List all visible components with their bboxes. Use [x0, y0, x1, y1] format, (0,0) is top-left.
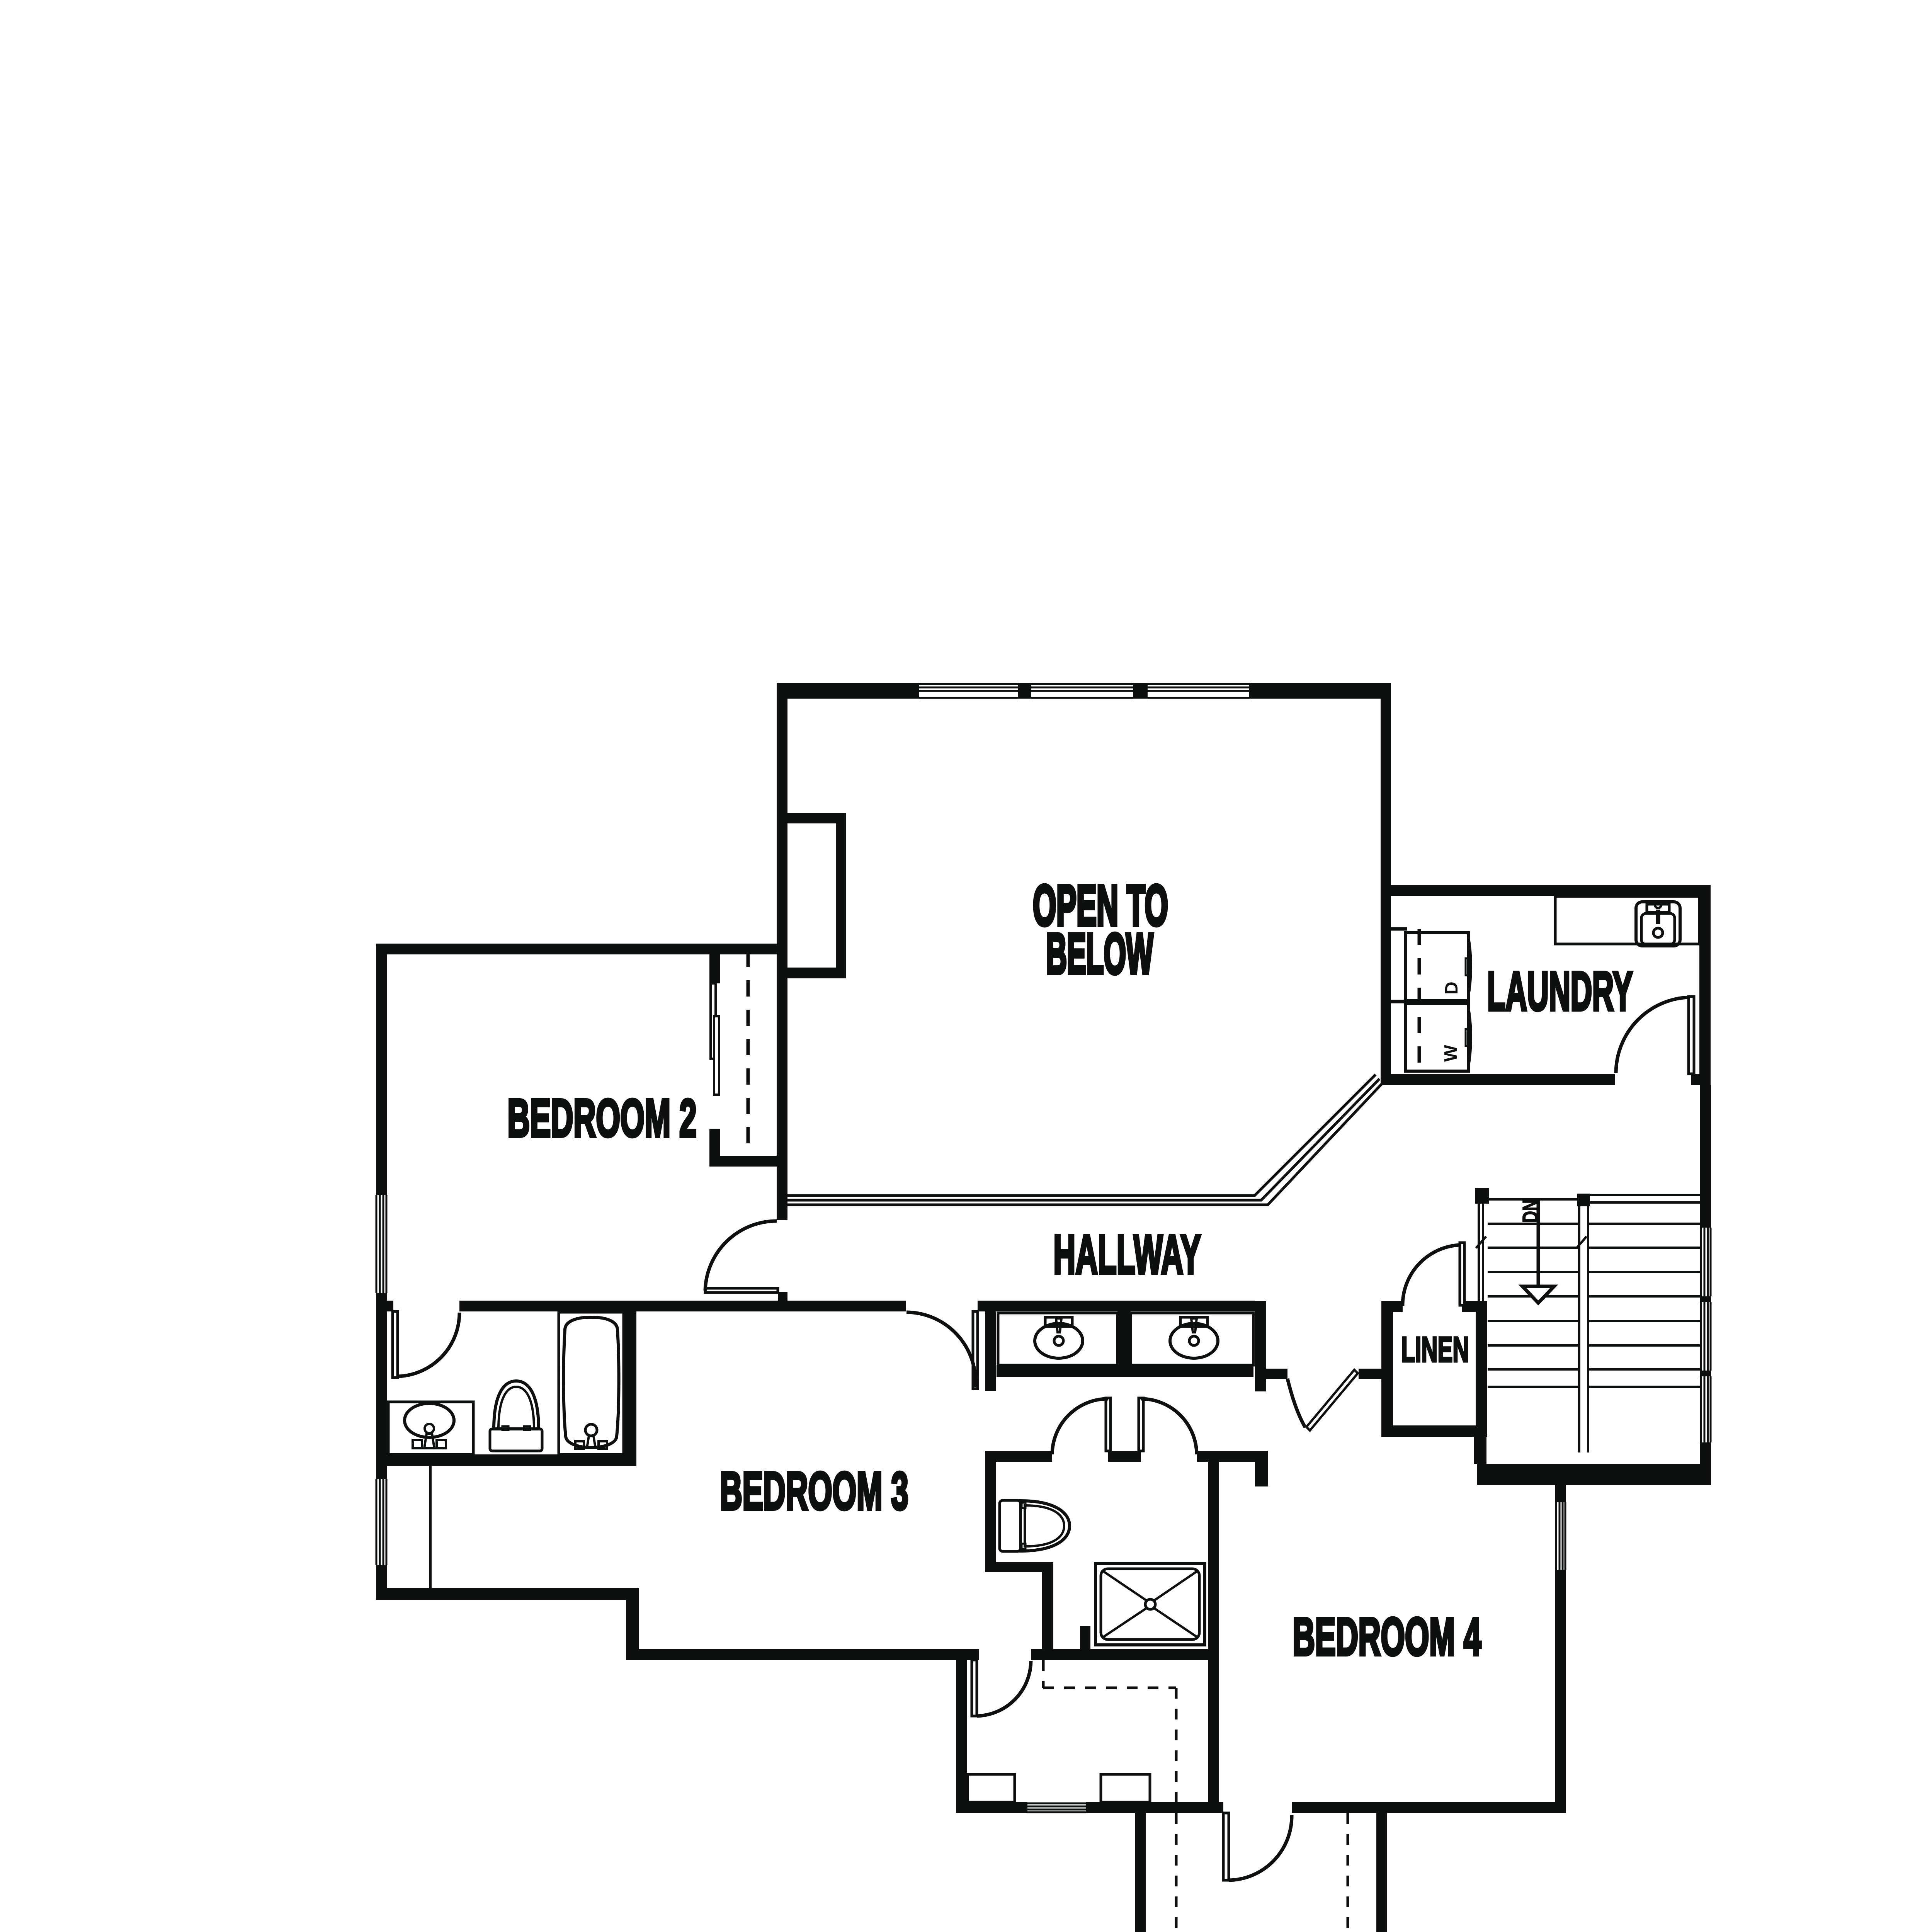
svg-text:BEDROOM 3: BEDROOM 3 [720, 1461, 908, 1521]
svg-text:HALLWAY: HALLWAY [1053, 1224, 1201, 1285]
svg-text:BEDROOM 2: BEDROOM 2 [507, 1088, 697, 1148]
svg-text:BELOW: BELOW [1046, 922, 1153, 986]
svg-text:D: D [1441, 981, 1461, 994]
svg-text:W: W [1440, 1045, 1461, 1062]
svg-text:BEDROOM 4: BEDROOM 4 [1293, 1607, 1481, 1667]
svg-text:LAUNDRY: LAUNDRY [1487, 961, 1633, 1022]
svg-text:DN: DN [1518, 1199, 1543, 1223]
svg-text:LINEN: LINEN [1401, 1330, 1469, 1369]
